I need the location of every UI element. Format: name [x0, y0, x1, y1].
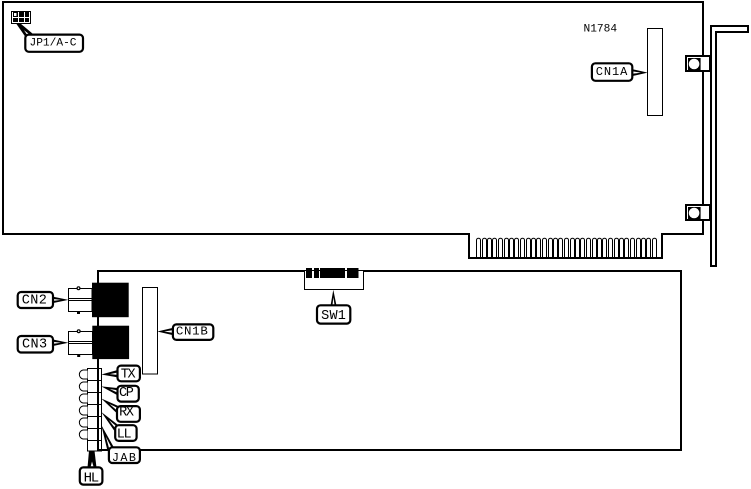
svg-text:CN2: CN2 — [22, 294, 48, 309]
svg-text:CN3: CN3 — [22, 338, 48, 353]
svg-text:N1784: N1784 — [584, 24, 618, 36]
svg-text:LL: LL — [117, 427, 132, 442]
svg-text:HL: HL — [84, 470, 99, 486]
svg-text:JAB: JAB — [112, 451, 137, 465]
svg-text:JP1/A-C: JP1/A-C — [30, 37, 77, 49]
svg-text:RX: RX — [119, 405, 134, 420]
svg-text:CN1B: CN1B — [176, 325, 209, 339]
svg-text:CP: CP — [119, 386, 134, 401]
svg-text:TX: TX — [121, 368, 136, 383]
svg-text:CN1A: CN1A — [596, 65, 629, 79]
svg-text:SW1: SW1 — [321, 309, 346, 324]
